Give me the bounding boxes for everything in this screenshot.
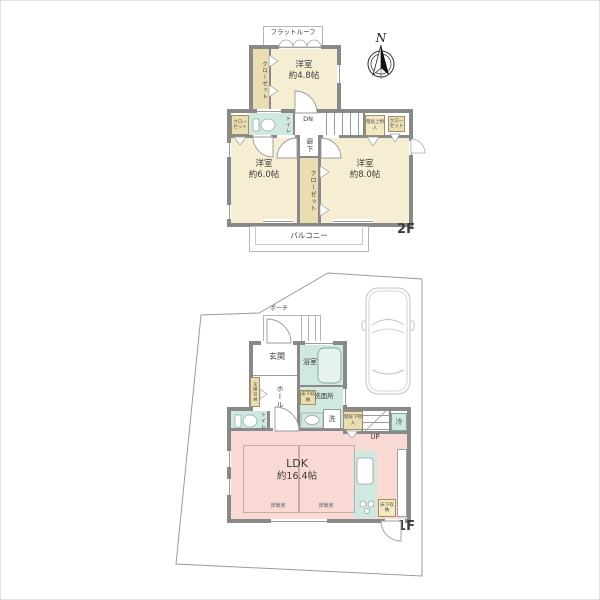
dn-label: DN [298, 115, 318, 123]
door-opening [323, 135, 339, 138]
room-size: 約6.0帖 [231, 170, 297, 181]
window [409, 141, 413, 155]
window [227, 479, 231, 495]
floor2-label: 2F [393, 222, 419, 238]
corridor-label: 廊下 [302, 134, 313, 156]
entrance-label: 玄関 [257, 352, 297, 362]
bedroom-4_8-label: 洋室 約4.8帖 [271, 60, 337, 81]
closet-box-left: クローゼット [231, 115, 249, 135]
entrance-door-opening [261, 341, 293, 345]
window [337, 65, 341, 83]
fridge-box: 冷 [391, 413, 407, 431]
laundry-box: 洗 [323, 409, 341, 429]
kitchen-underfloor-storage-box: 床下収納 [378, 499, 396, 517]
room-name: 洋室 [231, 159, 297, 170]
porch-step-line [315, 316, 316, 342]
bedroom-8_0 [321, 138, 409, 223]
ldk-label: LDK 約16.4帖 [245, 457, 349, 483]
room-name: 洋室 [321, 159, 409, 170]
closet-upper-left-label: クローゼット [254, 57, 267, 103]
entrance-storage-box: 玄関収納 [250, 377, 260, 407]
toilet-2f-label: トイレ [281, 114, 291, 136]
porch-step-line [308, 316, 309, 342]
bathroom-label: 浴室 [298, 358, 322, 367]
window [227, 205, 231, 219]
floor-plan-canvas: フラットルーフ クローゼット 階段上物入 クローゼット クローゼット 洋室 約4… [0, 0, 600, 600]
wall-segment [407, 407, 411, 523]
porch-label: ポーチ [259, 305, 299, 313]
floor-heating-label-left: 床暖房 [263, 503, 293, 509]
flat-roof-label: フラットルーフ [261, 28, 325, 36]
compass-icon [368, 45, 394, 79]
door-opening [295, 109, 317, 113]
entrance-step-line [253, 375, 297, 376]
room-size: 約8.0帖 [321, 170, 409, 181]
room-size: 約16.4帖 [245, 471, 349, 483]
window [305, 341, 333, 345]
wall-segment [299, 385, 343, 387]
bedroom-8_0-label: 洋室 約8.0帖 [321, 159, 409, 180]
window [227, 451, 231, 467]
kitchen-counter [353, 451, 377, 518]
stair-top-storage-box: 階段上物入 [365, 115, 385, 136]
door-opening [253, 135, 271, 138]
bedroom-6_0 [231, 138, 297, 223]
balcony-window [333, 219, 373, 223]
window [257, 109, 281, 113]
compass-n-label: N [372, 31, 390, 46]
stairs-up-1f [363, 409, 389, 433]
balcony-window [263, 219, 293, 223]
terrace-window [271, 519, 327, 523]
washroom-label: 洗面所 [304, 392, 344, 400]
toilet-1f-label: トイレ [256, 412, 266, 430]
balcony-label: バルコニー [249, 231, 369, 240]
window [227, 143, 231, 157]
car-icon [362, 288, 414, 394]
entrance-storage-label: 玄関収納 [253, 382, 258, 402]
wall-segment [293, 113, 295, 135]
counter [397, 449, 407, 517]
closet-box-right: クローゼット [388, 116, 405, 132]
up-label: UP [361, 433, 389, 442]
room-size: 約4.8帖 [271, 71, 337, 82]
wall-segment [300, 156, 318, 158]
wall-segment [297, 135, 300, 223]
hall-label: ホール [272, 381, 284, 413]
closet-middle-label: クローゼット [302, 167, 316, 215]
room-name: LDK [245, 457, 349, 471]
floor1-label: 1F [393, 519, 419, 535]
door-opening [273, 428, 299, 431]
porch-step-line [301, 316, 302, 342]
wall-segment [231, 428, 273, 431]
porch-outline [263, 315, 321, 343]
stairs-down-2f [319, 113, 363, 135]
stair-under-storage-box: 階段下物入 [343, 411, 363, 430]
window [279, 45, 321, 49]
room-name: 洋室 [271, 60, 337, 71]
floor-heating-label-right: 床暖房 [311, 503, 341, 509]
bedroom-6_0-label: 洋室 約6.0帖 [231, 159, 297, 180]
